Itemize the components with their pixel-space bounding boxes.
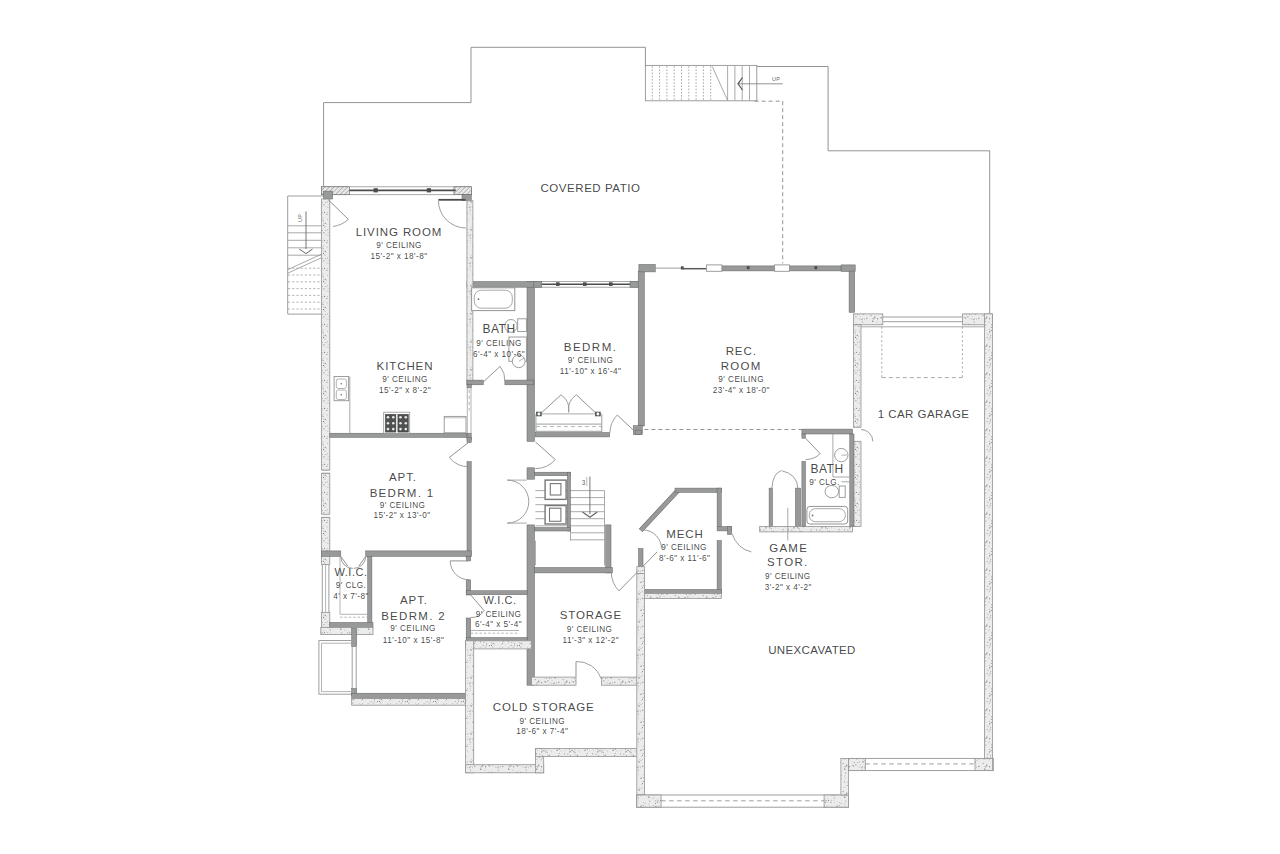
svg-text:9' CEILING: 9' CEILING (390, 624, 436, 633)
svg-text:6'-4" x 10'-6": 6'-4" x 10'-6" (473, 350, 525, 359)
svg-text:1 CAR GARAGE: 1 CAR GARAGE (878, 408, 970, 420)
svg-text:9' CEILING: 9' CEILING (718, 375, 764, 384)
svg-text:MECH: MECH (666, 528, 703, 540)
svg-text:9' CEILING: 9' CEILING (376, 241, 422, 250)
svg-text:15'-2" x 8'-2": 15'-2" x 8'-2" (379, 386, 431, 395)
svg-text:9' CEILING: 9' CEILING (382, 375, 428, 384)
svg-text:15'-2" x 18'-8": 15'-2" x 18'-8" (370, 252, 427, 261)
svg-text:9' CEILING: 9' CEILING (765, 572, 811, 581)
svg-text:6'-4" x 5'-4": 6'-4" x 5'-4" (475, 620, 522, 629)
svg-text:ROOM: ROOM (721, 360, 762, 372)
svg-text:9' CEILING: 9' CEILING (476, 339, 522, 348)
svg-text:STORAGE: STORAGE (560, 609, 622, 621)
svg-text:9' CEILING: 9' CEILING (476, 610, 522, 619)
svg-text:11'-3" x 12'-2": 11'-3" x 12'-2" (563, 636, 620, 645)
svg-text:3'-2" x 4'-2": 3'-2" x 4'-2" (765, 583, 812, 592)
svg-text:UP: UP (297, 214, 303, 222)
svg-text:9' CEILING: 9' CEILING (567, 625, 613, 634)
svg-text:9' CLG.: 9' CLG. (809, 478, 840, 487)
svg-text:BEDRM.: BEDRM. (564, 341, 618, 353)
svg-text:23'-4" x 18'-0": 23'-4" x 18'-0" (713, 386, 770, 395)
svg-text:11'-10" x 15'-8": 11'-10" x 15'-8" (383, 636, 445, 645)
svg-text:W.I.C.: W.I.C. (335, 566, 368, 578)
svg-text:9' CEILING: 9' CEILING (519, 717, 565, 726)
svg-text:BEDRM. 1: BEDRM. 1 (370, 487, 435, 499)
svg-text:4' x 7'-8": 4' x 7'-8" (333, 592, 369, 601)
svg-text:REC.: REC. (726, 345, 757, 357)
svg-text:9' CLG.: 9' CLG. (336, 581, 367, 590)
svg-text:BATH: BATH (810, 462, 843, 476)
svg-text:UNEXCAVATED: UNEXCAVATED (768, 644, 856, 656)
svg-text:UP: UP (772, 76, 780, 82)
svg-text:LIVING ROOM: LIVING ROOM (356, 226, 443, 238)
svg-text:8'-6" x 11'-6": 8'-6" x 11'-6" (659, 554, 711, 563)
svg-text:15'-2" x 13'-0": 15'-2" x 13'-0" (373, 511, 430, 520)
svg-text:APT.: APT. (389, 471, 417, 483)
svg-text:STOR.: STOR. (767, 556, 808, 568)
svg-text:9' CEILING: 9' CEILING (380, 501, 426, 510)
svg-text:3: 3 (582, 479, 586, 486)
svg-text:COLD STORAGE: COLD STORAGE (493, 701, 595, 713)
svg-text:GAME: GAME (769, 542, 808, 554)
svg-text:APT.: APT. (400, 594, 428, 606)
svg-text:BATH: BATH (482, 322, 515, 336)
svg-text:BEDRM. 2: BEDRM. 2 (381, 610, 446, 622)
svg-text:COVERED PATIO: COVERED PATIO (540, 182, 640, 194)
svg-text:W.I.C.: W.I.C. (484, 594, 517, 606)
svg-text:9' CEILING: 9' CEILING (661, 543, 707, 552)
svg-text:18'-6" x 7'-4": 18'-6" x 7'-4" (516, 727, 568, 736)
svg-text:9' CEILING: 9' CEILING (568, 356, 614, 365)
svg-text:KITCHEN: KITCHEN (377, 360, 434, 372)
svg-text:11'-10" x 16'-4": 11'-10" x 16'-4" (560, 367, 622, 376)
